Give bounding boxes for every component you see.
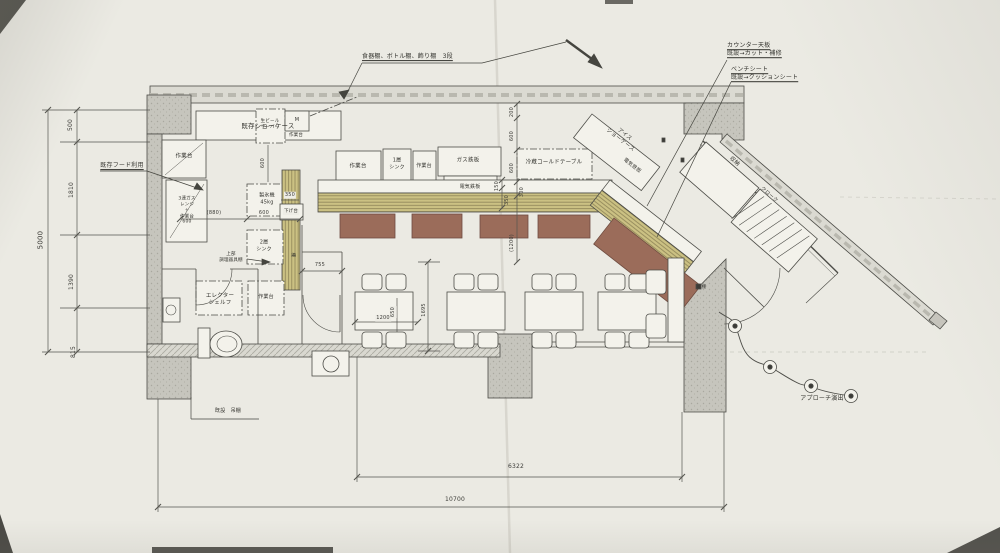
note-bench-seat: ベンチシート 既設→クッションシート [731,66,798,82]
label-electric-teppan: 電気鉄板 [460,184,481,191]
dim-600: 600 [260,158,267,168]
dining-table [355,274,413,348]
dim-300: 300 [519,187,526,197]
label-beer-server-mark: M [295,117,300,124]
dim-880: (880) [207,210,221,217]
label-1-layer-sink: 1層 シンク [389,158,405,171]
dim-200: 200 [509,107,516,117]
note-counter-top: カウンター天板 既設→カット・補修 [727,42,782,58]
note-existing-hood: 既存フード利用 [100,162,143,170]
label-worktable: 作業台 [349,163,366,170]
label-lowering-table: 下げ台 [283,209,299,215]
dim-650: 650 [390,306,397,318]
label-cold-table: 冷蔵コールドテーブル [526,159,583,166]
label-erecta-shelf: エレクター シェルフ [206,293,234,307]
label-worktable: 作業台 [258,294,274,301]
stepping-stones [729,320,858,403]
floor-plan-photo: 既存ショーケース 生ビール サーバー M 作業台 作業台 3連ガス レンジ ＋ … [0,0,1000,553]
dim-6322: 6322 [508,463,524,471]
label-worktable: 作業台 [289,133,303,139]
entrance-and-approach [719,268,858,403]
dim-600: 600 [259,210,269,217]
dim-1810: 1810 [68,182,76,198]
dim-350: 350 [504,195,511,205]
dim-755: 755 [315,262,325,269]
label-gas-teppan: ガス鉄板 [457,157,480,164]
dining-table [525,274,583,348]
dim-350: 350 [284,192,296,199]
dim-815: 815 [70,346,78,358]
dim-10700: 10700 [445,496,465,504]
note-top-shelf: 食器棚、ボトル棚、飾り棚 3段 [362,53,453,61]
label-hanging-shelf: 既設 吊棚 [215,408,241,415]
dim-1200: 1200 [375,315,391,322]
label-shelf: 棚 [702,285,707,291]
label-shelf: 棚 [289,253,295,258]
dim-150: 150 [494,181,501,191]
label-worktable: 作業台 [416,163,432,170]
dim-1390: 1390 [68,274,76,290]
label-2-layer-sink: 2層 シンク [256,240,272,253]
note-approach: アプローチ演出 [800,395,843,403]
dim-overall-height: 5000 [36,231,45,250]
dim-500: 500 [67,119,75,131]
dining-table [447,274,505,348]
label-gas-range: 3連ガス レンジ ＋ 作業台 600 [178,196,195,225]
dim-1200-paren: (1200) [509,234,516,252]
dim-600: 600 [509,131,516,141]
label-beer-server: 生ビール サーバー [261,119,280,131]
floor-plan-drawing [0,0,1000,553]
dim-1695: 1695 [421,303,428,317]
label-ice-maker: 製氷機 45kg [259,193,275,206]
dim-600: 600 [509,163,516,173]
label-upper-shelf: 上部 調理器具棚 [219,252,243,264]
label-worktable: 作業台 [175,153,192,160]
